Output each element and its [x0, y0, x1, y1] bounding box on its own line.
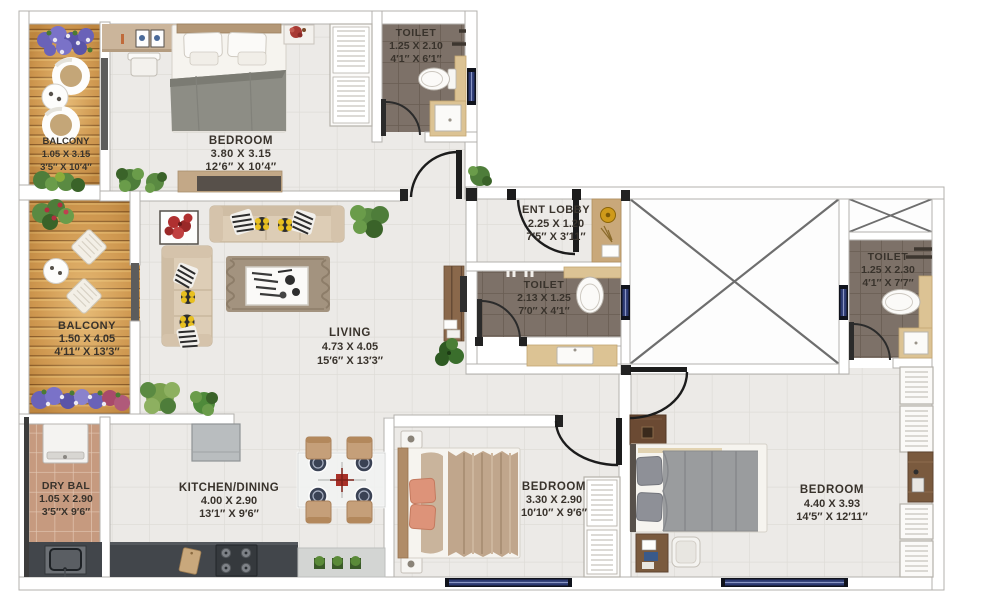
svg-text:1.05 X 2.90: 1.05 X 2.90 — [39, 493, 93, 505]
svg-text:4′1″ X 7′7″: 4′1″ X 7′7″ — [862, 277, 913, 289]
svg-text:15′6″ X 13′3″: 15′6″ X 13′3″ — [317, 355, 384, 367]
svg-text:1.50 X 4.05: 1.50 X 4.05 — [59, 333, 115, 345]
svg-text:3′5″ X 10′4″: 3′5″ X 10′4″ — [40, 162, 92, 173]
svg-text:4.00 X 2.90: 4.00 X 2.90 — [201, 495, 257, 507]
svg-text:3′5″X 9′6″: 3′5″X 9′6″ — [42, 506, 90, 518]
svg-text:KITCHEN/DINING: KITCHEN/DINING — [179, 482, 279, 494]
svg-text:14′5″ X 12′11″: 14′5″ X 12′11″ — [796, 511, 868, 523]
svg-text:ENT LOBBY: ENT LOBBY — [522, 204, 590, 216]
svg-text:12′6″ X 10′4″: 12′6″ X 10′4″ — [205, 161, 276, 173]
svg-text:TOILET: TOILET — [524, 279, 565, 291]
svg-text:BALCONY: BALCONY — [43, 136, 91, 147]
svg-text:2.25 X 1.20: 2.25 X 1.20 — [528, 218, 584, 230]
svg-text:4.73 X 4.05: 4.73 X 4.05 — [322, 341, 378, 353]
svg-text:4′1″ X 6′1″: 4′1″ X 6′1″ — [390, 53, 441, 65]
svg-text:7′5″ X 3′11″: 7′5″ X 3′11″ — [526, 231, 586, 243]
svg-text:10′10″ X 9′6″: 10′10″ X 9′6″ — [521, 507, 588, 519]
svg-text:1.25 X 2.10: 1.25 X 2.10 — [389, 40, 443, 52]
svg-text:BEDROOM: BEDROOM — [522, 481, 586, 493]
svg-text:3.30 X 2.90: 3.30 X 2.90 — [526, 494, 582, 506]
svg-text:13′1″ X 9′6″: 13′1″ X 9′6″ — [199, 508, 260, 520]
svg-text:LIVING: LIVING — [329, 327, 371, 339]
svg-text:4′11″ X 13′3″: 4′11″ X 13′3″ — [54, 346, 120, 358]
svg-text:TOILET: TOILET — [868, 251, 909, 263]
svg-text:TOILET: TOILET — [396, 27, 437, 39]
svg-text:1.05 X 3.15: 1.05 X 3.15 — [42, 149, 91, 160]
svg-text:BEDROOM: BEDROOM — [209, 135, 273, 147]
svg-text:3.80 X 3.15: 3.80 X 3.15 — [211, 148, 272, 160]
svg-text:BEDROOM: BEDROOM — [800, 484, 864, 496]
svg-text:1.25 X 2.30: 1.25 X 2.30 — [861, 264, 915, 276]
svg-text:4.40 X 3.93: 4.40 X 3.93 — [804, 498, 860, 510]
svg-text:2.13 X 1.25: 2.13 X 1.25 — [517, 292, 571, 304]
svg-text:DRY BAL: DRY BAL — [42, 480, 90, 492]
svg-text:7′0″ X 4′1″: 7′0″ X 4′1″ — [518, 305, 569, 317]
svg-text:BALCONY: BALCONY — [58, 320, 116, 332]
